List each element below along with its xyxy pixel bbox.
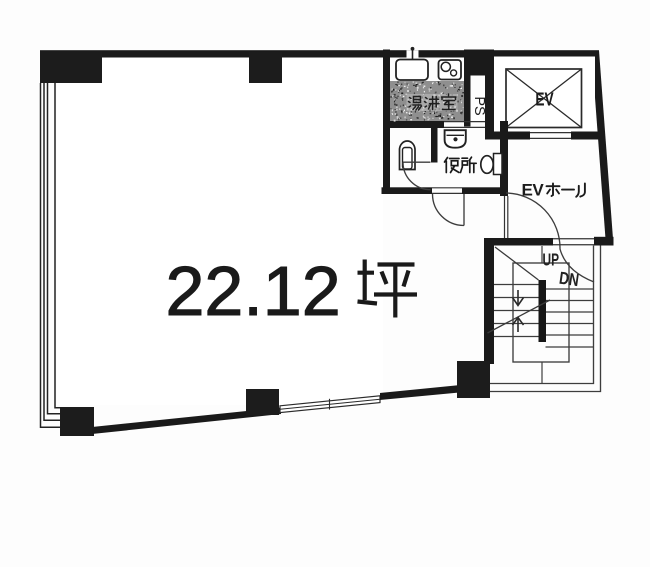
svg-text:DN: DN	[558, 269, 580, 291]
svg-text:22.12: 22.12	[166, 252, 341, 330]
svg-text:EV: EV	[522, 181, 545, 200]
svg-text:PS: PS	[471, 96, 487, 115]
svg-text:EV: EV	[535, 90, 553, 110]
svg-text:UP: UP	[543, 250, 560, 270]
